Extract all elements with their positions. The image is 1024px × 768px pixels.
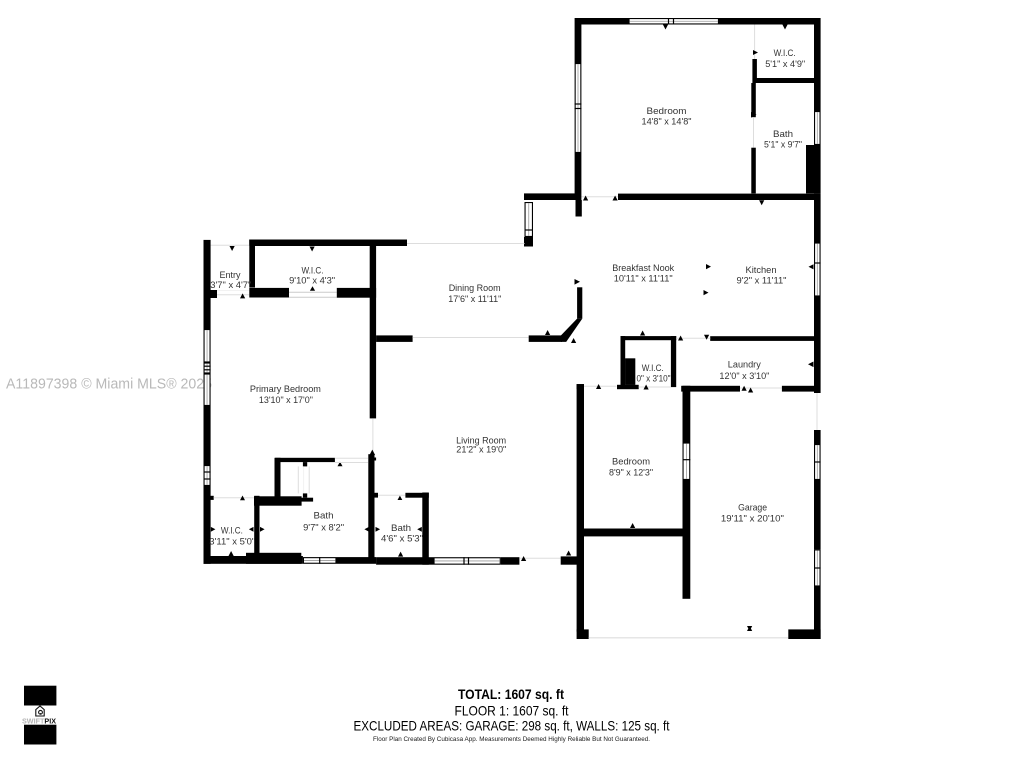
svg-text:Garage: Garage: [738, 502, 767, 513]
svg-text:13'10" x 17'0": 13'10" x 17'0": [259, 394, 313, 405]
svg-text:10'11" x 11'11": 10'11" x 11'11": [614, 273, 673, 284]
svg-text:0" x 3'10": 0" x 3'10": [637, 373, 671, 384]
svg-text:9'10" x 4'3": 9'10" x 4'3": [289, 274, 335, 285]
svg-text:Bedroom: Bedroom: [612, 456, 650, 467]
svg-text:9'2" x 11'11": 9'2" x 11'11": [737, 275, 787, 286]
svg-text:3'7" x 4'7": 3'7" x 4'7": [210, 279, 251, 290]
svg-text:8'9" x 12'3": 8'9" x 12'3": [609, 466, 653, 477]
svg-text:9'7" x 8'2": 9'7" x 8'2": [303, 522, 344, 533]
svg-text:19'11" x 20'10": 19'11" x 20'10": [721, 512, 784, 523]
svg-text:Primary Bedroom: Primary Bedroom: [250, 383, 321, 394]
svg-text:Bath: Bath: [773, 128, 793, 139]
svg-text:17'6" x 11'11": 17'6" x 11'11": [448, 293, 501, 304]
svg-text:W.I.C.: W.I.C.: [221, 525, 243, 536]
svg-text:4'6" x 5'3": 4'6" x 5'3": [381, 532, 423, 543]
svg-text:Floor Plan Created By Cubicasa: Floor Plan Created By Cubicasa App. Meas…: [373, 736, 650, 743]
svg-text:W.I.C.: W.I.C.: [642, 362, 664, 373]
svg-text:21'2" x 19'0": 21'2" x 19'0": [456, 444, 506, 455]
svg-text:Breakfast Nook: Breakfast Nook: [612, 262, 674, 273]
svg-text:12'0" x 3'10": 12'0" x 3'10": [719, 370, 769, 381]
svg-text:Dining Room: Dining Room: [449, 282, 501, 293]
svg-text:FLOOR 1: 1607 sq. ft: FLOOR 1: 1607 sq. ft: [455, 703, 569, 719]
svg-text:EXCLUDED AREAS: GARAGE: 298 sq: EXCLUDED AREAS: GARAGE: 298 sq. ft, WALL…: [354, 718, 670, 734]
svg-text:Laundry: Laundry: [728, 359, 761, 370]
svg-text:5'1" x 4'9": 5'1" x 4'9": [765, 58, 805, 69]
svg-text:A11897398 © Miami MLS® 2025: A11897398 © Miami MLS® 2025: [6, 377, 212, 393]
svg-text:W.I.C.: W.I.C.: [774, 47, 796, 58]
svg-text:3'11" x 5'0": 3'11" x 5'0": [209, 536, 255, 547]
svg-text:Bath: Bath: [391, 522, 411, 533]
svg-text:14'8" x 14'8": 14'8" x 14'8": [642, 116, 692, 127]
svg-text:Bath: Bath: [314, 510, 334, 521]
svg-text:SWIFTPIX: SWIFTPIX: [22, 716, 56, 725]
svg-text:TOTAL: 1607 sq. ft: TOTAL: 1607 sq. ft: [458, 686, 564, 702]
svg-text:Bedroom: Bedroom: [647, 105, 687, 116]
svg-text:5'1" x 9'7": 5'1" x 9'7": [764, 139, 802, 150]
